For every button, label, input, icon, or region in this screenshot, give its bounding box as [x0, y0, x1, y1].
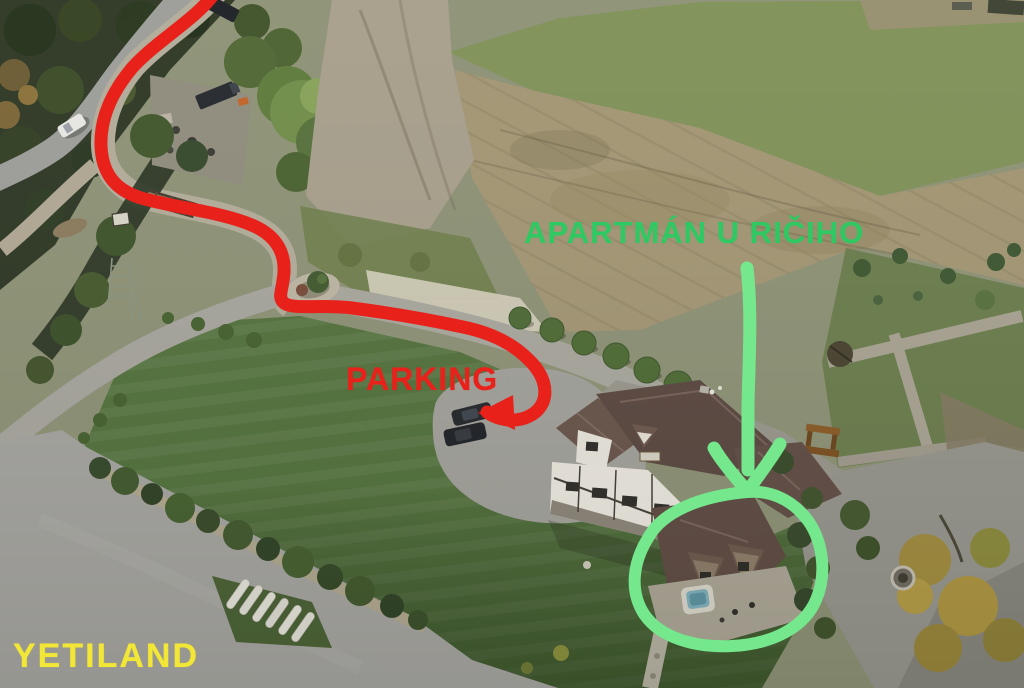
aerial-photo-canvas: [0, 0, 1024, 688]
site-label: YETILAND: [13, 639, 199, 673]
destination-label: APARTMÁN U RIČIHO: [524, 217, 864, 248]
parking-label: PARKING: [346, 363, 498, 395]
aerial-photo: APARTMÁN U RIČIHO PARKING YETILAND: [0, 0, 1024, 688]
green-arrow-shaft: [747, 268, 750, 470]
